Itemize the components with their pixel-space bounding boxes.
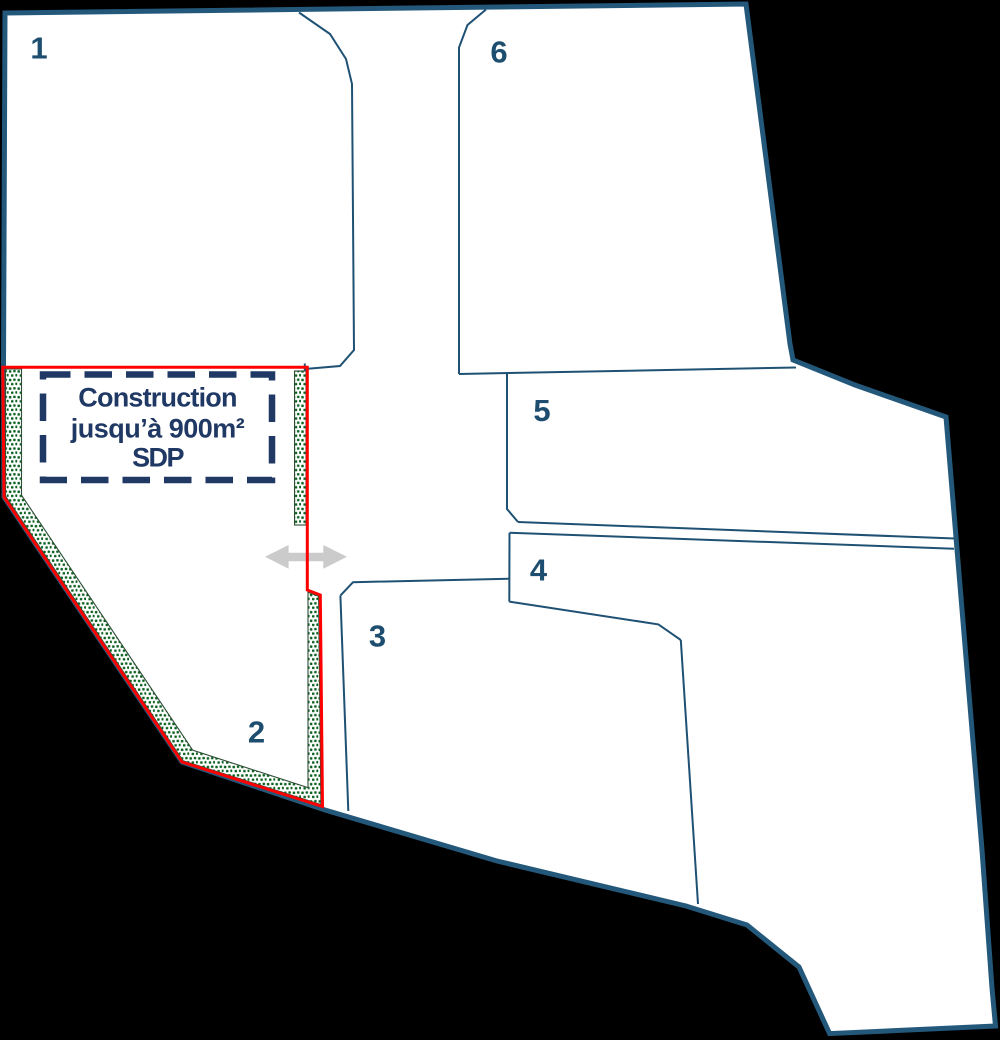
svg-text:4: 4 [530,553,548,588]
svg-text:2: 2 [248,714,265,749]
svg-text:5: 5 [533,393,550,428]
svg-text:1: 1 [30,31,47,66]
svg-text:6: 6 [490,35,507,70]
svg-text:3: 3 [369,619,386,654]
svg-text:Construction: Construction [78,383,236,413]
svg-text:jusqu’à 900m²: jusqu’à 900m² [70,414,245,444]
svg-text:SDP: SDP [132,443,184,473]
